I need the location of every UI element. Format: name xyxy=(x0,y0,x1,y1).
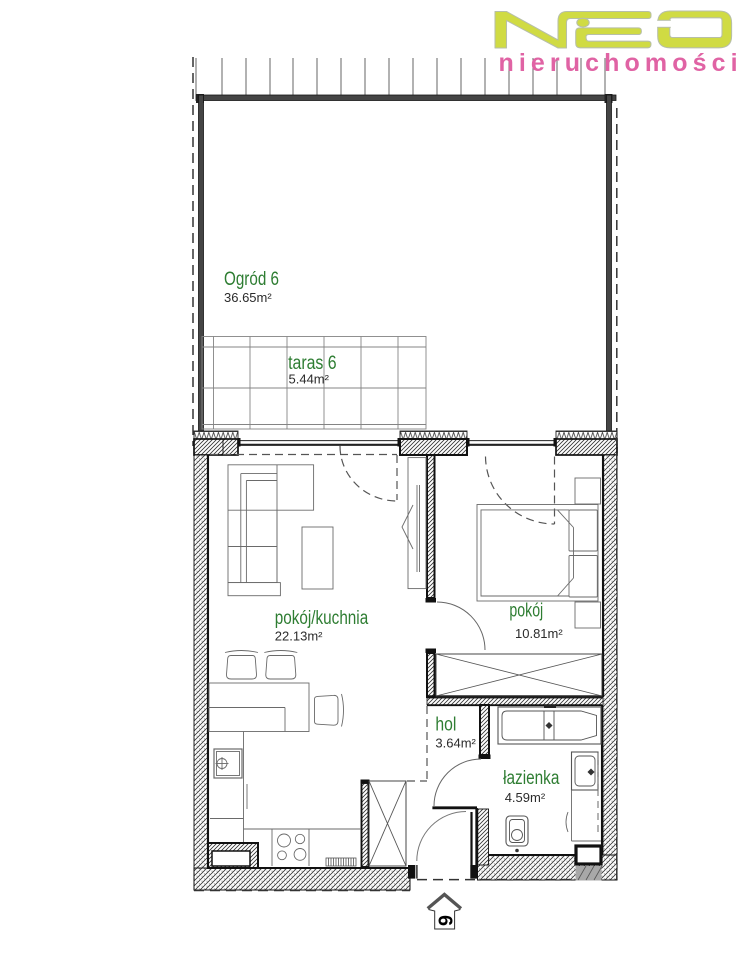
svg-text:hol: hol xyxy=(435,714,456,735)
svg-text:4.59m²: 4.59m² xyxy=(505,790,546,805)
svg-text:36.65m²: 36.65m² xyxy=(224,290,272,305)
svg-text:5.44m²: 5.44m² xyxy=(289,372,330,387)
svg-text:Ogród 6: Ogród 6 xyxy=(224,269,279,290)
svg-text:pokój: pokój xyxy=(509,601,543,622)
svg-text:nieruchomości: nieruchomości xyxy=(499,49,743,77)
svg-text:6: 6 xyxy=(434,915,456,926)
svg-text:pokój/kuchnia: pokój/kuchnia xyxy=(275,608,369,629)
svg-text:22.13m²: 22.13m² xyxy=(275,628,323,643)
svg-text:10.81m²: 10.81m² xyxy=(515,626,563,641)
svg-text:3.64m²: 3.64m² xyxy=(435,735,476,750)
svg-text:łazienka: łazienka xyxy=(503,768,560,789)
